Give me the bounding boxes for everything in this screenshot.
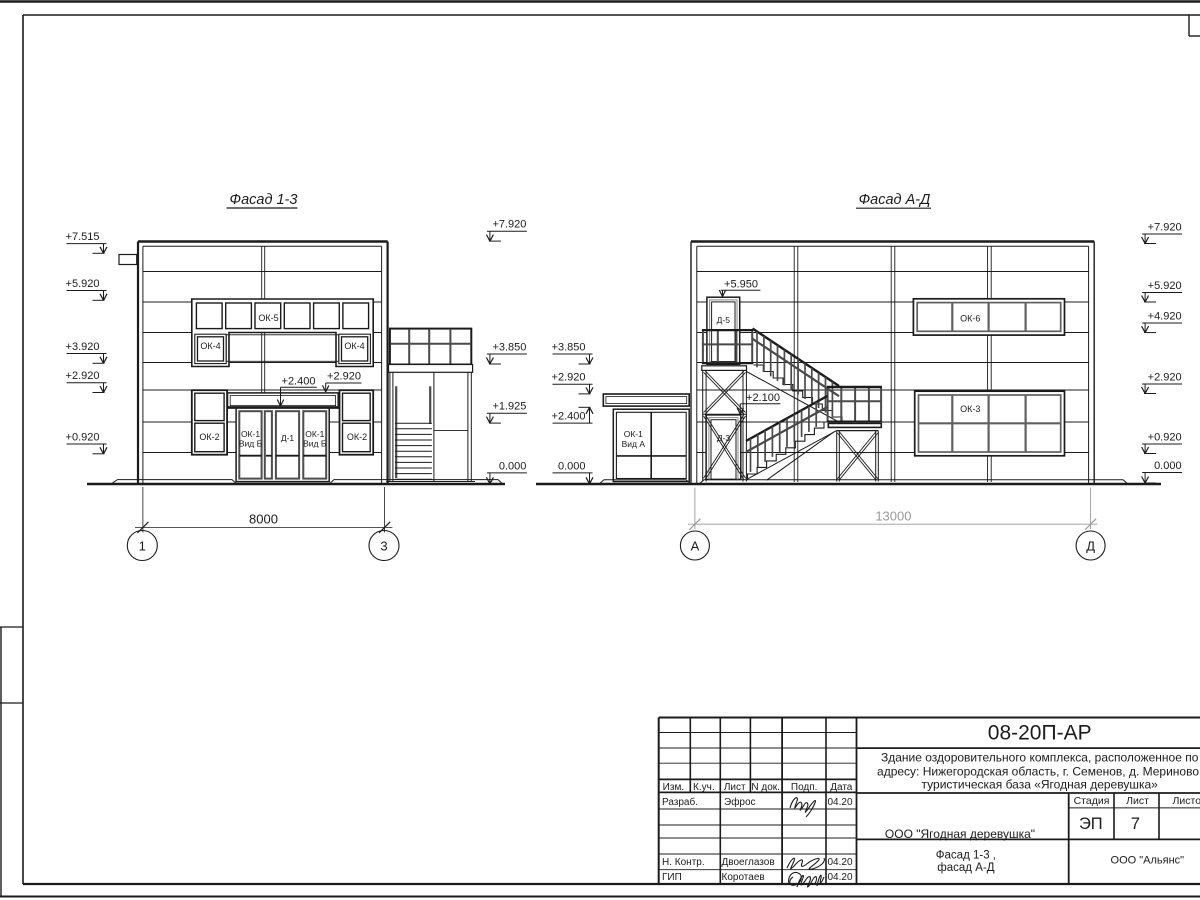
svg-text:Листов: Листов xyxy=(1173,795,1200,807)
svg-text:Стадия: Стадия xyxy=(1074,795,1110,807)
svg-text:+0.920: +0.920 xyxy=(1148,432,1182,444)
svg-text:Коротаев: Коротаев xyxy=(722,872,765,883)
svg-text:+2.920: +2.920 xyxy=(1148,372,1182,384)
svg-text:0.000: 0.000 xyxy=(558,460,586,472)
svg-text:Д: Д xyxy=(1086,538,1095,553)
svg-text:Н. Контр.: Н. Контр. xyxy=(662,857,705,868)
svg-text:К.уч.: К.уч. xyxy=(693,782,715,793)
svg-text:фасад А-Д: фасад А-Д xyxy=(937,862,994,874)
svg-text:адресу: Нижегородская область,: адресу: Нижегородская область, г. Семено… xyxy=(877,764,1200,778)
svg-text:Лист: Лист xyxy=(724,782,746,793)
svg-text:+2.920: +2.920 xyxy=(66,370,100,382)
svg-text:Лист: Лист xyxy=(1126,795,1149,807)
svg-text:+5.950: +5.950 xyxy=(724,278,758,290)
svg-text:ОК-4: ОК-4 xyxy=(200,341,220,351)
svg-text:Вид А: Вид А xyxy=(622,439,646,449)
svg-text:Эфрос: Эфрос xyxy=(724,796,756,808)
svg-text:+7.920: +7.920 xyxy=(1148,222,1182,234)
svg-text:+2.400: +2.400 xyxy=(552,411,586,423)
svg-text:13000: 13000 xyxy=(875,509,911,524)
svg-text:Фасад 1-3: Фасад 1-3 xyxy=(230,192,298,208)
svg-text:04.20: 04.20 xyxy=(827,797,852,808)
svg-text:+2.400: +2.400 xyxy=(282,375,316,387)
svg-text:Д-5: Д-5 xyxy=(717,315,731,325)
svg-text:+4.920: +4.920 xyxy=(1148,311,1182,323)
svg-text:ОК-4: ОК-4 xyxy=(344,341,364,351)
svg-text:ОК-1: ОК-1 xyxy=(624,429,643,439)
svg-text:туристическая база «Ягодная де: туристическая база «Ягодная деревушка» xyxy=(922,777,1159,791)
svg-text:N док.: N док. xyxy=(751,782,780,793)
svg-text:ОК-1: ОК-1 xyxy=(305,429,324,439)
svg-text:Вид Б: Вид Б xyxy=(239,439,263,449)
svg-text:3: 3 xyxy=(380,538,387,553)
svg-text:ОК-6: ОК-6 xyxy=(960,314,980,324)
svg-text:04.20: 04.20 xyxy=(827,872,852,883)
svg-text:ООО "Альянс": ООО "Альянс" xyxy=(1111,855,1185,867)
svg-text:ЭП: ЭП xyxy=(1079,815,1103,833)
svg-text:+3.920: +3.920 xyxy=(66,341,100,353)
svg-text:04.20: 04.20 xyxy=(827,857,852,868)
svg-text:0.000: 0.000 xyxy=(1154,460,1182,472)
svg-text:Фасад А-Д: Фасад А-Д xyxy=(859,192,931,208)
svg-text:Фасад 1-3 ,: Фасад 1-3 , xyxy=(936,849,996,861)
svg-text:ГИП: ГИП xyxy=(662,872,682,883)
svg-text:+7.920: +7.920 xyxy=(492,219,526,231)
svg-text:+2.920: +2.920 xyxy=(327,371,361,383)
svg-text:ОК-2: ОК-2 xyxy=(347,432,367,442)
svg-text:+0.920: +0.920 xyxy=(66,432,100,444)
svg-text:+3.850: +3.850 xyxy=(552,342,586,354)
svg-text:8000: 8000 xyxy=(249,511,278,526)
svg-text:+1.925: +1.925 xyxy=(492,401,526,413)
svg-text:+5.920: +5.920 xyxy=(1148,280,1182,292)
svg-text:+2.920: +2.920 xyxy=(552,372,586,384)
svg-text:ОК-2: ОК-2 xyxy=(199,432,219,442)
svg-text:+2.100: +2.100 xyxy=(746,392,780,404)
svg-text:0.000: 0.000 xyxy=(499,460,527,472)
svg-text:Вид Б: Вид Б xyxy=(303,439,327,449)
svg-text:Д-1: Д-1 xyxy=(281,433,295,443)
svg-text:+3.850: +3.850 xyxy=(492,342,526,354)
svg-text:ОК-5: ОК-5 xyxy=(258,313,278,323)
svg-text:1: 1 xyxy=(139,538,146,553)
svg-text:ОК-3: ОК-3 xyxy=(960,404,980,414)
svg-text:Здание оздоровительного компле: Здание оздоровительного комплекса, распо… xyxy=(881,751,1199,765)
svg-text:Подп.: Подп. xyxy=(791,782,818,793)
svg-text:08-20П-АР: 08-20П-АР xyxy=(988,722,1092,745)
svg-text:+5.920: +5.920 xyxy=(66,278,100,290)
svg-text:Дата: Дата xyxy=(830,782,853,793)
svg-text:Двоеглазов: Двоеглазов xyxy=(722,857,775,868)
svg-text:Изм.: Изм. xyxy=(663,782,684,793)
svg-text:А: А xyxy=(691,538,700,553)
svg-text:Разраб.: Разраб. xyxy=(662,796,698,808)
svg-text:ОК-1: ОК-1 xyxy=(241,429,260,439)
svg-text:+7.515: +7.515 xyxy=(66,231,100,243)
svg-text:7: 7 xyxy=(1131,815,1140,833)
